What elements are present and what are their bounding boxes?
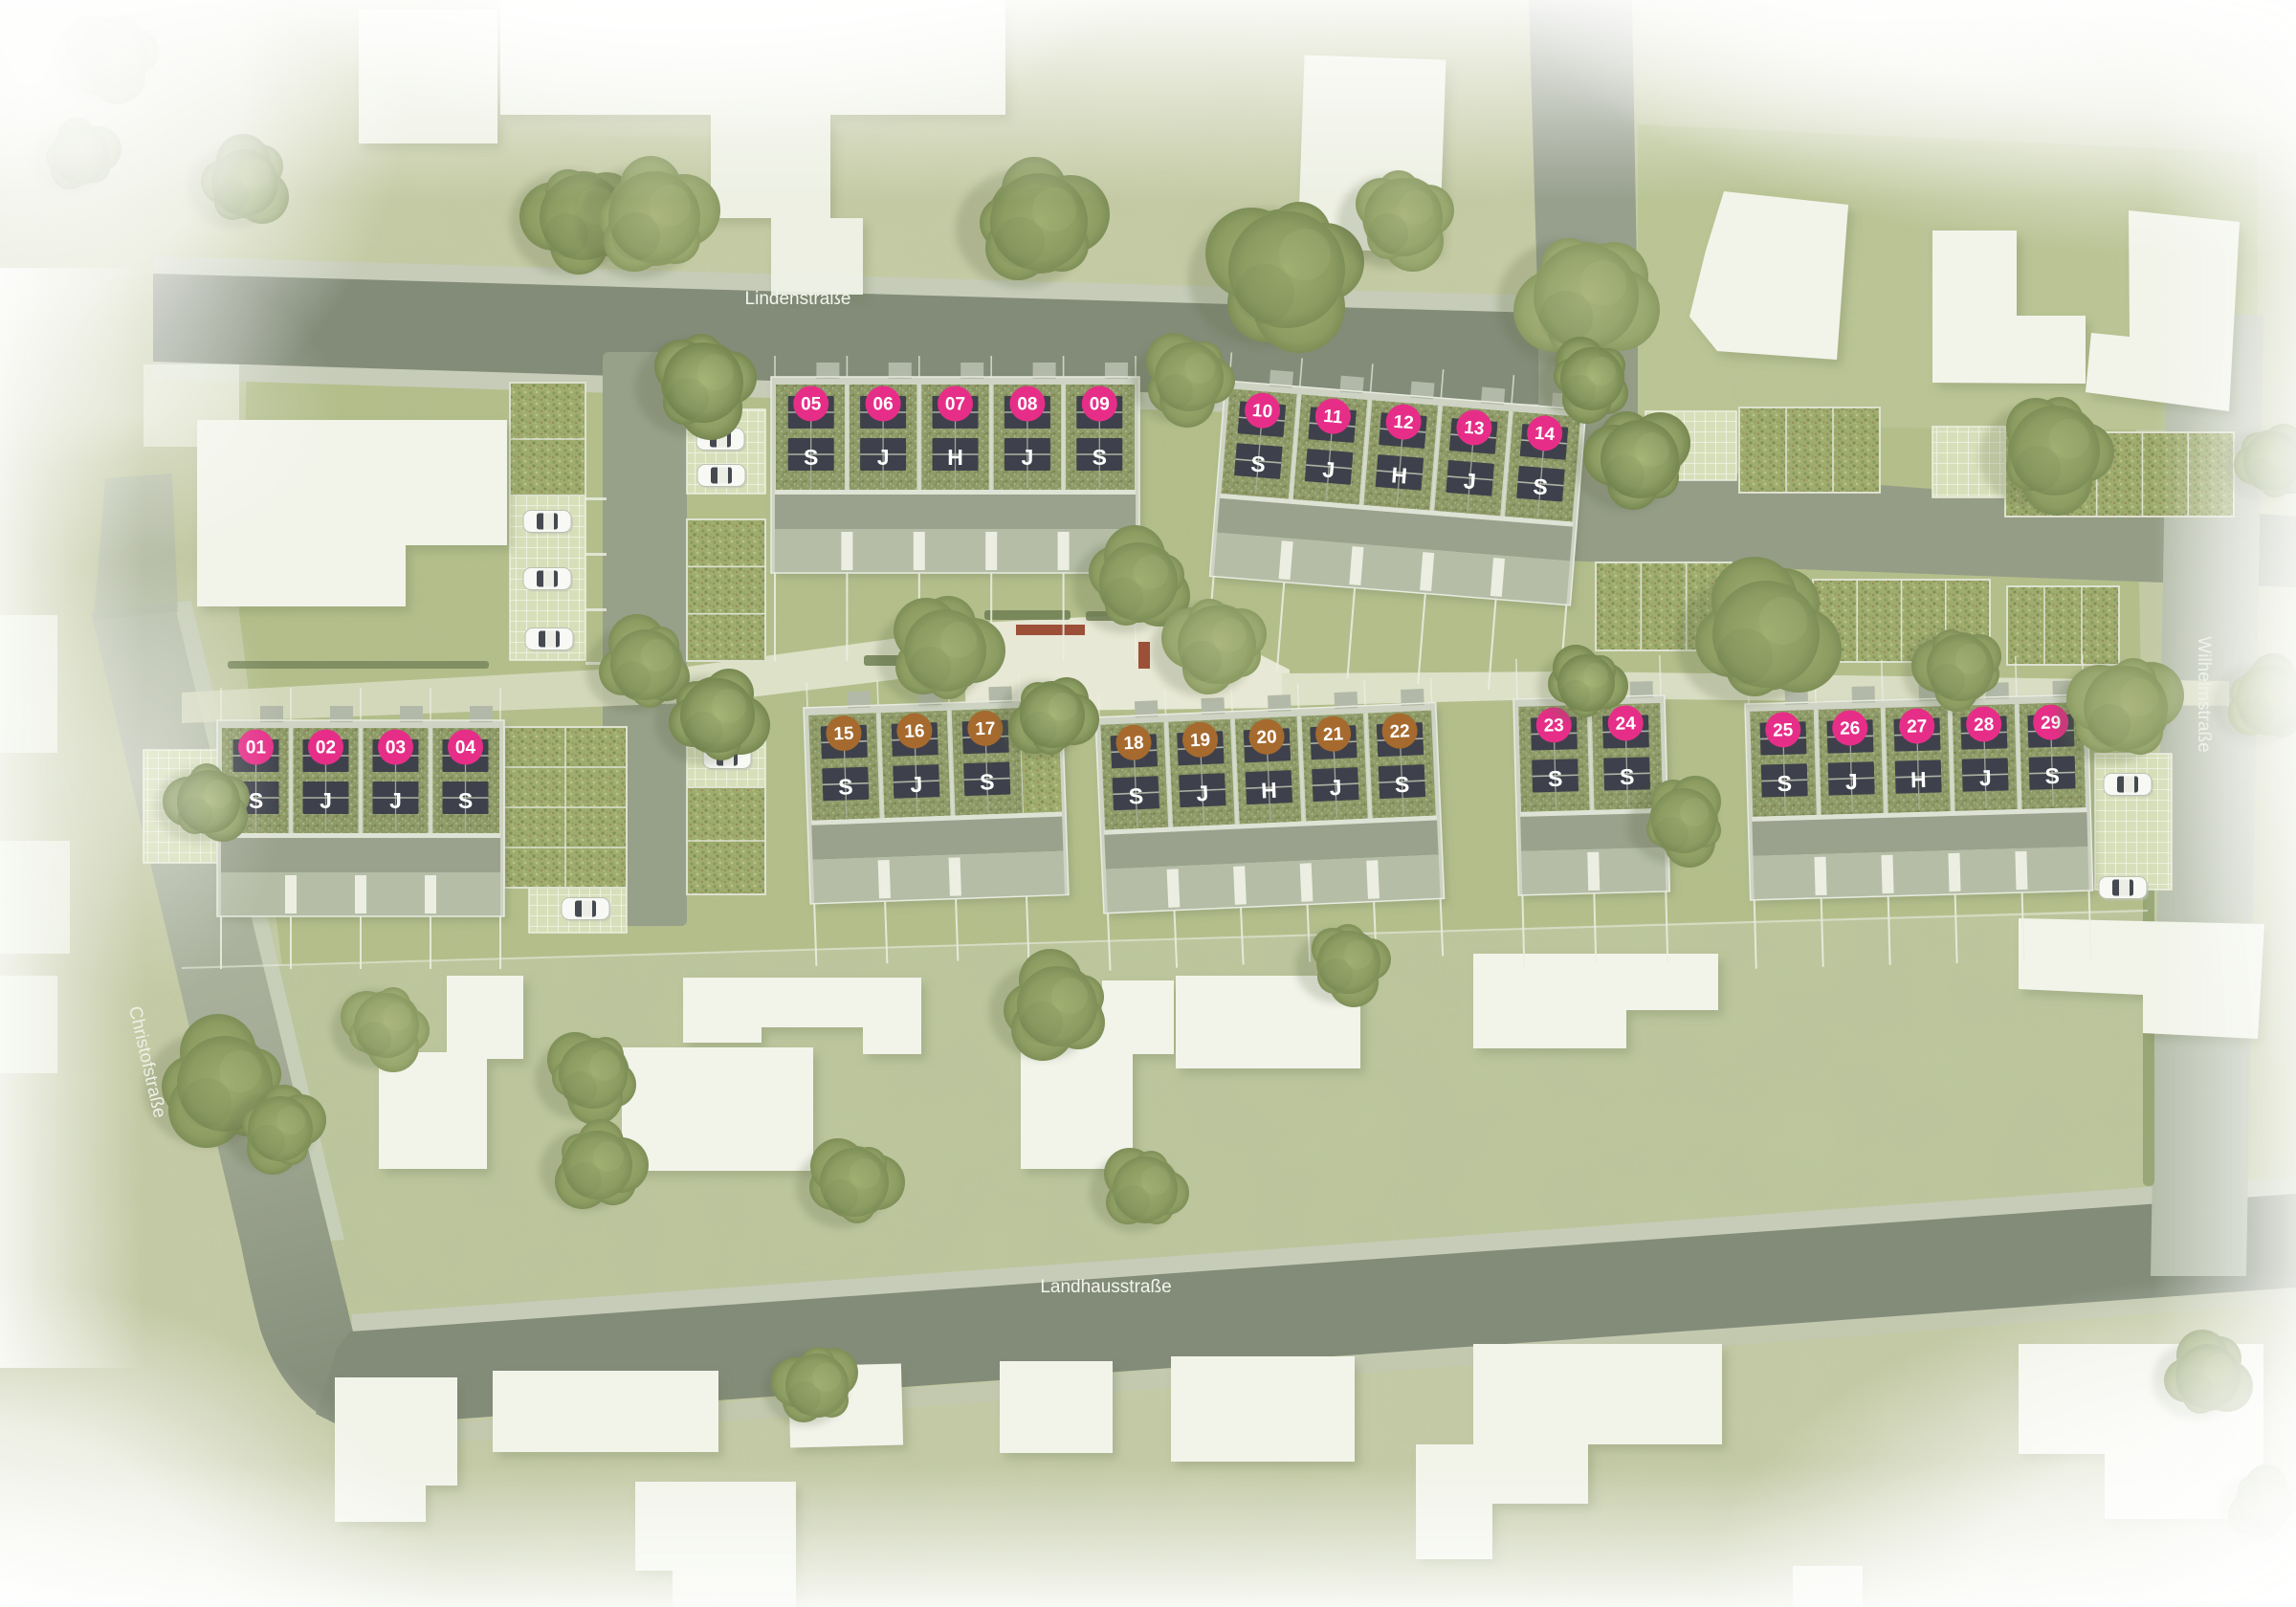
svg-text:17: 17 [975,719,996,740]
svg-text:06: 06 [873,395,894,415]
svg-text:J: J [1978,765,1992,790]
svg-text:J: J [910,772,923,797]
svg-text:S: S [1620,764,1635,789]
svg-text:S: S [458,788,473,813]
svg-text:H: H [947,445,963,470]
svg-text:11: 11 [1322,407,1343,429]
svg-text:23: 23 [1543,715,1564,737]
svg-text:05: 05 [801,395,822,415]
svg-text:J: J [1845,769,1859,794]
svg-text:S: S [980,769,995,795]
svg-text:25: 25 [1773,720,1794,741]
svg-text:S: S [1394,772,1409,798]
svg-text:S: S [1093,445,1107,470]
svg-text:H: H [1390,462,1408,488]
svg-text:S: S [1249,451,1266,476]
svg-text:S: S [1548,766,1563,791]
svg-text:08: 08 [1017,395,1037,415]
svg-text:J: J [320,788,332,813]
svg-text:21: 21 [1323,724,1344,745]
svg-text:J: J [1321,456,1336,482]
svg-text:S: S [2044,763,2060,788]
svg-text:J: J [1463,468,1477,494]
svg-text:24: 24 [1615,714,1636,735]
svg-text:07: 07 [945,395,965,415]
svg-text:15: 15 [833,724,854,745]
svg-text:28: 28 [1974,715,1995,736]
svg-text:J: J [1329,775,1342,801]
svg-text:Wilhelmstraße: Wilhelmstraße [2194,636,2214,752]
svg-text:J: J [1022,445,1034,470]
svg-text:22: 22 [1389,721,1410,742]
svg-text:J: J [877,445,890,470]
svg-text:S: S [1532,473,1548,499]
svg-text:J: J [389,788,402,813]
svg-text:18: 18 [1123,733,1144,754]
svg-text:10: 10 [1251,401,1273,423]
svg-text:26: 26 [1840,718,1861,739]
svg-text:04: 04 [455,738,476,759]
svg-text:H: H [1261,778,1278,803]
svg-text:27: 27 [1907,716,1928,737]
svg-text:S: S [1128,783,1143,809]
svg-text:09: 09 [1090,395,1110,415]
svg-text:14: 14 [1534,424,1556,446]
svg-text:13: 13 [1463,418,1485,440]
svg-text:Landhausstraße: Landhausstraße [1040,1277,1171,1297]
svg-text:03: 03 [386,738,406,759]
svg-text:S: S [838,774,853,800]
svg-text:J: J [1196,781,1209,806]
svg-text:Lindenstraße: Lindenstraße [745,289,851,309]
svg-text:H: H [1910,767,1927,792]
svg-text:19: 19 [1190,730,1211,751]
svg-text:12: 12 [1393,412,1415,434]
svg-text:16: 16 [904,721,925,742]
svg-text:20: 20 [1256,727,1277,748]
svg-text:02: 02 [316,738,336,759]
svg-text:S: S [804,445,818,470]
svg-text:S: S [1777,771,1792,796]
